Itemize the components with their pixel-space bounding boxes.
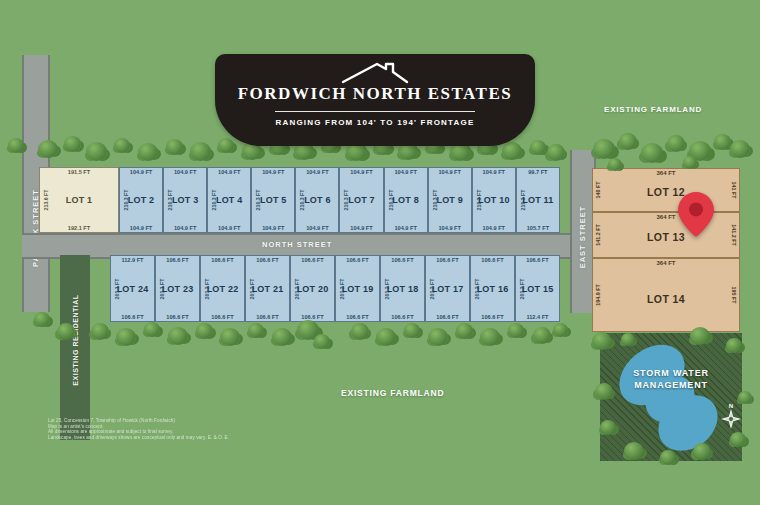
lot-front-measure: 112.9 FT: [111, 257, 154, 263]
tree-icon: [138, 143, 158, 161]
lot-front-measure: 106.6 FT: [336, 257, 379, 263]
lot-front-measure: 104.9 FT: [252, 169, 294, 175]
lot-parcel[interactable]: 106.6 FT201.2 FTLOT 17106.6 FT: [425, 255, 470, 322]
lot-right-measure: 141.2 FT: [731, 213, 737, 257]
lot-parcel[interactable]: 99.7 FT210.3 FTLOT 11105.7 FT: [516, 167, 560, 233]
lot-parcel[interactable]: 106.6 FT201.2 FTLOT 20106.6 FT: [290, 255, 335, 322]
tree-icon: [714, 134, 731, 150]
bottom-lot-row: 112.9 FT201.1 FTLOT 24106.6 FT106.6 FT20…: [110, 255, 560, 322]
lot-right-measure: 195 FT: [731, 273, 737, 317]
tree-icon: [144, 322, 160, 337]
lot-parcel[interactable]: 106.6 FT201.2 FTLOT 16106.6 FT: [470, 255, 515, 322]
tree-icon: [8, 138, 24, 153]
lot-parcel[interactable]: 104.9 FT210.3 FTLOT 7104.9 FT: [339, 167, 383, 233]
tree-icon: [166, 139, 183, 155]
tree-icon: [600, 420, 616, 435]
banner-divider: [275, 111, 475, 112]
tree-icon: [690, 327, 710, 345]
lot-parcel[interactable]: 104.9 FT210.3 FTLOT 6104.9 FT: [295, 167, 339, 233]
lot-label: LOT 18: [387, 284, 419, 294]
lot-parcel[interactable]: 106.6 FT201.2 FTLOT 19106.6 FT: [335, 255, 380, 322]
tree-icon: [428, 328, 448, 346]
lot-left-measure: 194.9 FT: [595, 273, 601, 317]
tree-icon: [530, 140, 546, 155]
lot-left-measure: 140 FT: [595, 168, 601, 212]
lot-front-measure: 104.9 FT: [296, 169, 338, 175]
lot-front-measure: 106.6 FT: [201, 257, 244, 263]
lot-parcel[interactable]: 106.6 FT201.1 FTLOT 23106.6 FT: [155, 255, 200, 322]
tree-icon: [608, 158, 622, 171]
east-street-label: EAST STREET: [578, 206, 587, 269]
storm-water-label: STORM WATER MANAGEMENT: [600, 367, 742, 391]
lot-parcel[interactable]: 106.6 FT201.2 FTLOT 15112.4 FT: [515, 255, 560, 322]
lot-label: LOT 21: [252, 284, 284, 294]
lot-front-measure: 104.9 FT: [208, 169, 250, 175]
lot-parcel[interactable]: 104.9 FT210.3 FTLOT 2104.9 FT: [119, 167, 163, 233]
lot-front-measure: 104.9 FT: [340, 169, 382, 175]
tree-icon: [196, 323, 213, 339]
tree-icon: [726, 338, 742, 353]
lot-label: LOT 1: [66, 195, 93, 205]
lot-rear-measure: 106.6 FT: [291, 314, 334, 320]
tree-icon: [248, 323, 264, 338]
lot-label: LOT 17: [432, 284, 464, 294]
pond-icon: [600, 333, 742, 461]
lot-rear-measure: 104.9 FT: [473, 225, 515, 231]
tree-icon: [624, 442, 644, 460]
lot-label: LOT 22: [207, 284, 239, 294]
lot-label: LOT 14: [647, 293, 685, 305]
tree-icon: [730, 140, 750, 158]
tree-icon: [533, 327, 551, 344]
lot-rear-measure: 106.6 FT: [111, 314, 154, 320]
lot-rear-measure: 106.6 FT: [381, 314, 424, 320]
lot-label: LOT 3: [172, 195, 199, 205]
lot-rear-measure: 104.9 FT: [120, 225, 162, 231]
tree-icon: [351, 323, 369, 340]
lot-parcel[interactable]: 104.9 FT210.3 FTLOT 4104.9 FT: [207, 167, 251, 233]
lot-label: LOT 16: [477, 284, 509, 294]
tree-icon: [456, 323, 473, 339]
disclaimer-text: Lot 25, Concession 7, Township of Howick…: [48, 418, 229, 440]
east-lot-column: 364 FT140 FT141 FTLOT 12364 FT141.2 FT14…: [592, 168, 740, 332]
lot-label: LOT 6: [304, 195, 331, 205]
site-plan-map: PATRICK STREET NORTH STREET EAST STREET …: [0, 0, 760, 505]
tree-icon: [314, 334, 330, 349]
development-title: FORDWICH NORTH ESTATES: [238, 84, 513, 104]
lot-front-measure: 364 FT: [593, 214, 739, 220]
lot-label: LOT 2: [128, 195, 155, 205]
tree-icon: [190, 142, 211, 161]
lot-rear-measure: 104.9 FT: [385, 225, 427, 231]
lot-front-measure: 104.9 FT: [385, 169, 427, 175]
tree-icon: [683, 156, 697, 169]
lot-label: LOT 10: [478, 195, 510, 205]
tree-icon: [738, 391, 752, 404]
lot-front-measure: 106.6 FT: [426, 257, 469, 263]
lot-parcel[interactable]: 106.6 FT201.2 FTLOT 22106.6 FT: [200, 255, 245, 322]
lot-front-measure: 106.6 FT: [156, 257, 199, 263]
tree-icon: [64, 136, 81, 152]
lot-rear-measure: 104.9 FT: [208, 225, 250, 231]
north-street-label: NORTH STREET: [262, 240, 332, 249]
lot-front-measure: 104.9 FT: [473, 169, 515, 175]
lot-label: LOT 5: [260, 195, 287, 205]
tree-icon: [114, 138, 130, 153]
lot-parcel[interactable]: 364 FT141.2 FT141.2 FTLOT 13: [592, 212, 740, 258]
lot-front-measure: 191.5 FT: [40, 169, 118, 175]
lot-rear-measure: 192.1 FT: [40, 225, 118, 231]
storm-water-zone: STORM WATER MANAGEMENT N: [600, 333, 742, 461]
tree-icon: [641, 143, 663, 163]
lot-left-measure: 141.2 FT: [595, 213, 601, 257]
tree-icon: [595, 383, 613, 400]
tree-icon: [592, 332, 612, 350]
tree-icon: [34, 312, 50, 327]
lot-front-measure: 106.6 FT: [516, 257, 559, 263]
tree-icon: [376, 328, 396, 346]
lot-front-measure: 99.7 FT: [517, 169, 559, 175]
title-banner: FORDWICH NORTH ESTATES RANGING FROM 104'…: [215, 54, 535, 146]
existing-residential-label: EXISTING RESIDENTIAL: [72, 294, 79, 385]
lot-side-measure: 213.6 FT: [43, 180, 49, 220]
lot-right-measure: 141 FT: [731, 168, 737, 212]
lot-front-measure: 106.6 FT: [291, 257, 334, 263]
lot-parcel[interactable]: 104.9 FT210.3 FTLOT 5104.9 FT: [251, 167, 295, 233]
lot-rear-measure: 104.9 FT: [340, 225, 382, 231]
tree-icon: [621, 333, 635, 346]
lot-rear-measure: 104.9 FT: [252, 225, 294, 231]
lot-rear-measure: 106.6 FT: [426, 314, 469, 320]
lot-rear-measure: 104.9 FT: [296, 225, 338, 231]
tree-icon: [220, 328, 240, 346]
tree-icon: [619, 133, 637, 150]
lot-parcel[interactable]: 104.9 FT210.3 FTLOT 9104.9 FT: [428, 167, 472, 233]
lot-rear-measure: 106.6 FT: [156, 314, 199, 320]
lot-front-measure: 364 FT: [593, 260, 739, 266]
frontage-subtitle: RANGING FROM 104' TO 194' FRONTAGE: [276, 118, 475, 127]
tree-icon: [508, 323, 524, 338]
lot-front-measure: 104.9 FT: [164, 169, 206, 175]
disclaimer-line: Landscape, trees and driveways shown are…: [48, 435, 229, 441]
lot-rear-measure: 112.4 FT: [516, 314, 559, 320]
tree-icon: [667, 135, 685, 152]
tree-icon: [404, 323, 420, 338]
lot-label: LOT 15: [522, 284, 554, 294]
tree-icon: [168, 327, 188, 345]
existing-residential-zone: EXISTING RESIDENTIAL: [60, 255, 90, 440]
farmland-top-label: EXISTING FARMLAND: [604, 105, 702, 114]
lot-rear-measure: 104.9 FT: [164, 225, 206, 231]
lot-rear-measure: 105.7 FT: [517, 225, 559, 231]
lot-label: LOT 23: [162, 284, 194, 294]
lot-front-measure: 104.9 FT: [429, 169, 471, 175]
lot-parcel[interactable]: 112.9 FT201.1 FTLOT 24106.6 FT: [110, 255, 155, 322]
lot-rear-measure: 106.6 FT: [246, 314, 289, 320]
lot-front-measure: 106.6 FT: [246, 257, 289, 263]
lot-label: LOT 9: [436, 195, 463, 205]
location-pin[interactable]: [678, 192, 714, 241]
lot-front-measure: 106.6 FT: [381, 257, 424, 263]
lot-rear-measure: 106.6 FT: [201, 314, 244, 320]
roof-icon: [339, 60, 411, 84]
lot-label: LOT 24: [117, 284, 149, 294]
farmland-bottom-label: EXISTING FARMLAND: [341, 388, 444, 398]
tree-icon: [693, 443, 711, 460]
lot-parcel[interactable]: 191.5 FT213.6 FTLOT 1192.1 FT: [39, 167, 119, 233]
tree-icon: [553, 323, 568, 337]
lot-label: LOT 7: [348, 195, 375, 205]
lot-parcel[interactable]: 106.6 FT201.2 FTLOT 18106.6 FT: [380, 255, 425, 322]
tree-icon: [57, 323, 75, 340]
tree-icon: [86, 142, 107, 161]
lot-parcel[interactable]: 364 FT140 FT141 FTLOT 12: [592, 168, 740, 212]
lot-label: LOT 8: [392, 195, 419, 205]
lot-parcel[interactable]: 104.9 FT210.3 FTLOT 8104.9 FT: [384, 167, 428, 233]
lot-rear-measure: 106.6 FT: [336, 314, 379, 320]
top-lot-row: 191.5 FT213.6 FTLOT 1192.1 FT104.9 FT210…: [39, 167, 560, 233]
lot-parcel[interactable]: 364 FT194.9 FT195 FTLOT 14: [592, 258, 740, 332]
tree-icon: [218, 138, 234, 153]
lot-label: LOT 20: [297, 284, 329, 294]
lot-rear-measure: 104.9 FT: [429, 225, 471, 231]
lot-label: LOT 11: [522, 195, 553, 205]
tree-icon: [660, 450, 676, 465]
tree-icon: [502, 142, 522, 160]
tree-icon: [38, 140, 58, 158]
tree-icon: [272, 328, 292, 346]
lot-rear-measure: 106.6 FT: [471, 314, 514, 320]
tree-icon: [116, 328, 136, 346]
lot-label: LOT 19: [342, 284, 374, 294]
lot-front-measure: 106.6 FT: [471, 257, 514, 263]
lot-front-measure: 104.9 FT: [120, 169, 162, 175]
compass-icon: N: [720, 403, 742, 434]
tree-icon: [547, 144, 565, 161]
tree-icon: [593, 139, 615, 159]
tree-icon: [480, 328, 500, 346]
lot-parcel[interactable]: 106.6 FT201.2 FTLOT 21106.6 FT: [245, 255, 290, 322]
lot-parcel[interactable]: 104.9 FT210.3 FTLOT 3104.9 FT: [163, 167, 207, 233]
tree-icon: [730, 432, 746, 447]
lot-label: LOT 4: [216, 195, 243, 205]
tree-icon: [91, 323, 109, 340]
lot-parcel[interactable]: 104.9 FT210.3 FTLOT 10104.9 FT: [472, 167, 516, 233]
